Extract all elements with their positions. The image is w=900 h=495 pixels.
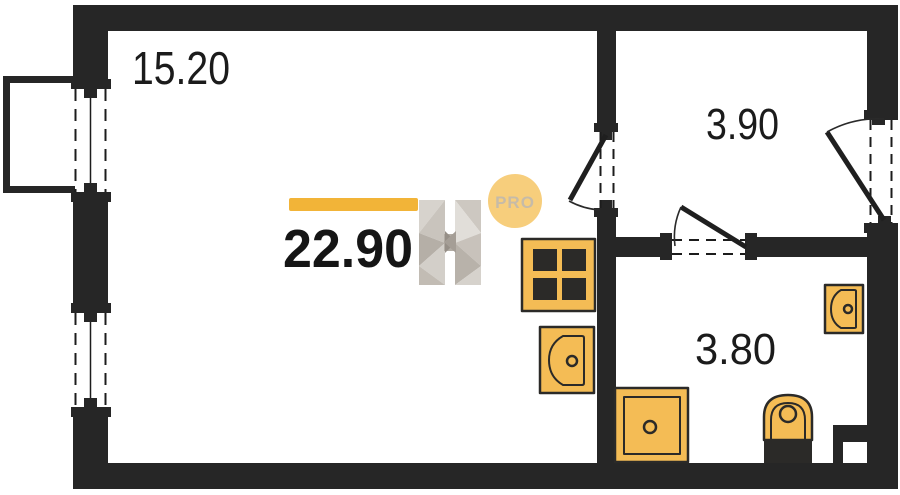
total-area-value: 22.90 bbox=[283, 219, 413, 279]
window-frame-block bbox=[84, 89, 97, 98]
pro-badge: PRO bbox=[488, 174, 542, 228]
stove-burner bbox=[562, 278, 586, 300]
window-sill bbox=[71, 192, 111, 202]
washbasin-drain bbox=[844, 305, 852, 313]
window-1 bbox=[71, 79, 111, 202]
duct-niche-top bbox=[833, 425, 867, 442]
stove-burner bbox=[533, 249, 557, 271]
room-area-hallway: 3.90 bbox=[706, 100, 779, 149]
floor-plan: 15.20 3.90 3.80 22.90 PRO bbox=[0, 0, 900, 495]
wall-divider-left bbox=[616, 237, 660, 257]
door-lintel bbox=[594, 123, 618, 132]
door-entrance bbox=[827, 110, 898, 233]
window-2 bbox=[71, 303, 111, 417]
sink-drain bbox=[567, 356, 577, 366]
window-frame-block bbox=[84, 313, 97, 322]
door-jamb bbox=[660, 233, 672, 260]
wall-top bbox=[73, 5, 898, 31]
total-area-block: 22.90 bbox=[283, 198, 418, 279]
balcony-outline bbox=[7, 80, 76, 190]
wall-right-lower bbox=[867, 233, 898, 489]
door-interior bbox=[569, 123, 618, 217]
door-leaf bbox=[827, 132, 884, 220]
floor-plan-drawing: 15.20 3.90 3.80 22.90 PRO bbox=[0, 0, 900, 495]
toilet-icon bbox=[764, 395, 812, 463]
builder-logo bbox=[419, 200, 481, 285]
pro-badge-label: PRO bbox=[495, 193, 535, 212]
accent-bar bbox=[289, 198, 418, 211]
shower-drain bbox=[644, 421, 656, 433]
wall-left-middle bbox=[73, 202, 108, 303]
room-area-bathroom: 3.80 bbox=[695, 325, 776, 374]
wall-middle-upper bbox=[597, 5, 616, 123]
toilet-flush bbox=[780, 406, 796, 422]
wall-right-upper bbox=[867, 5, 898, 110]
wall-bottom bbox=[73, 463, 898, 489]
wall-divider-right bbox=[757, 237, 867, 257]
stove-burner bbox=[533, 278, 557, 300]
window-sill bbox=[71, 79, 111, 89]
wall-middle-lower bbox=[597, 217, 616, 463]
window-sill bbox=[71, 303, 111, 313]
window-frame-block bbox=[84, 398, 97, 407]
toilet-tank bbox=[764, 440, 812, 463]
window-frame-block bbox=[84, 183, 97, 192]
stove-burner bbox=[562, 249, 586, 271]
wall-left-lower bbox=[73, 417, 108, 489]
door-bathroom bbox=[660, 207, 757, 260]
door-lintel bbox=[864, 223, 898, 233]
washbasin-icon bbox=[825, 285, 863, 333]
stove-icon bbox=[522, 239, 595, 311]
wall-left-upper bbox=[73, 5, 108, 79]
kitchen-sink-icon bbox=[540, 327, 594, 393]
shower-icon bbox=[615, 388, 688, 462]
duct-niche-side bbox=[833, 442, 843, 463]
door-hinge-block bbox=[601, 200, 612, 208]
room-area-living: 15.20 bbox=[132, 42, 230, 94]
window-sill bbox=[71, 407, 111, 417]
door-jamb bbox=[745, 233, 757, 260]
